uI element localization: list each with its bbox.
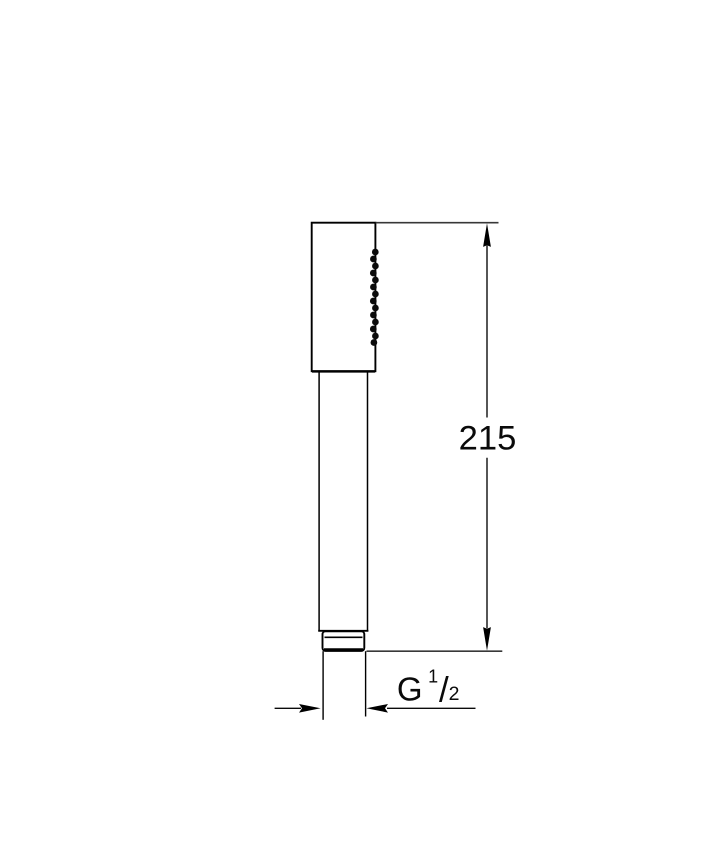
svg-text:/: / xyxy=(439,671,449,710)
svg-text:2: 2 xyxy=(449,683,460,705)
svg-text:1: 1 xyxy=(428,667,438,687)
svg-text:G: G xyxy=(397,671,423,708)
svg-text:215: 215 xyxy=(459,420,517,458)
